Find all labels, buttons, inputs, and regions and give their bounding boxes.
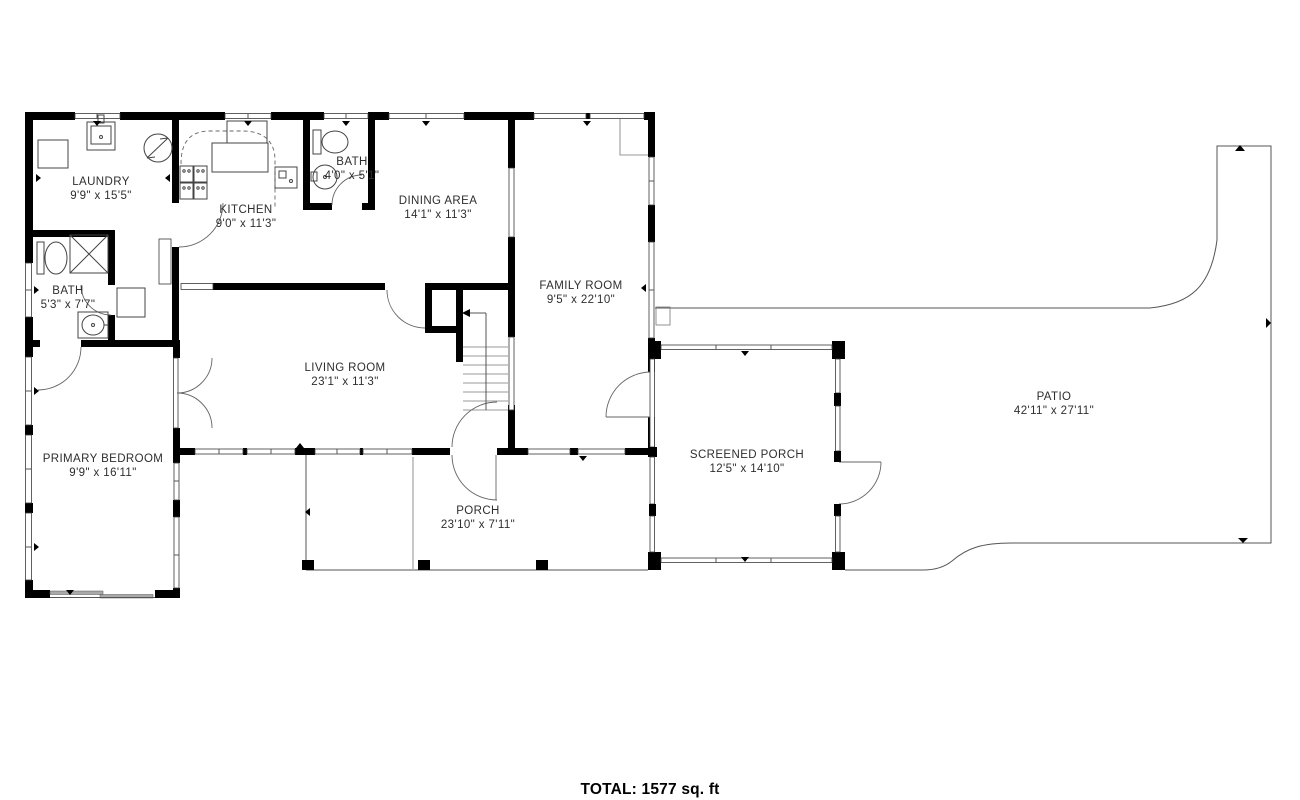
french-door-lower [177,393,212,428]
room-label-family-room: FAMILY ROOM [539,280,622,292]
room-labels: LAUNDRY 9'9" x 15'5" KITCHEN 9'0" x 11'3… [41,156,1094,531]
room-dims-dining-area: 14'1" x 11'3" [404,209,471,221]
room-label-bath-upper: BATH [336,156,367,168]
floor-plan-canvas: LAUNDRY 9'9" x 15'5" KITCHEN 9'0" x 11'3… [0,0,1300,800]
bedroom-door [38,347,81,390]
porch-post [418,560,430,570]
room-label-living-room: LIVING ROOM [304,362,385,374]
room-dims-bath-left: 5'3" x 7'7" [41,299,96,311]
room-dims-family-room: 9'5" x 22'10" [547,294,615,306]
total-area-label: TOTAL: 1577 sq. ft [580,781,719,798]
room-label-screened-porch: SCREENED PORCH [690,449,804,461]
floor-plan-page: LAUNDRY 9'9" x 15'5" KITCHEN 9'0" x 11'3… [0,0,1300,800]
room-dims-kitchen: 9'0" x 11'3" [216,218,277,230]
room-label-bath-left: BATH [52,285,83,297]
room-label-kitchen: KITCHEN [219,204,272,216]
entry-door-hall-swing [452,402,497,447]
doors [38,175,881,598]
kitchen-counter-outline [181,131,275,207]
room-dims-bath-upper: 4'0" x 5'1" [325,170,380,182]
room-dims-laundry: 9'9" x 15'5" [70,190,131,202]
room-dims-screened-porch: 12'5" x 14'10" [709,463,784,475]
room-dims-living-room: 23'1" x 11'3" [311,376,378,388]
room-label-dining-area: DINING AREA [399,195,478,207]
stair-railing [509,337,514,410]
hall-cabinet-fixture [117,288,145,317]
room-label-primary-bedroom: PRIMARY BEDROOM [43,453,164,465]
porch-post [302,560,314,570]
room-dims-porch: 23'10" x 7'11" [441,519,515,531]
dining-living-door [387,290,425,328]
entry-door-porch-swing [452,455,497,500]
room-label-patio: PATIO [1037,391,1072,403]
room-dims-primary-bedroom: 9'9" x 16'11" [69,467,136,479]
room-dims-patio: 42'11" x 27'11" [1014,405,1094,417]
room-label-porch: PORCH [456,505,500,517]
screened-porch-door [839,462,881,504]
kitchen-island-fixture [212,143,268,172]
washer-dryer-fixture [180,166,207,199]
family-patio-door [606,372,651,417]
toilet-fixture [313,130,321,154]
staircase [462,309,514,410]
room-label-laundry: LAUNDRY [72,176,130,188]
stair-arrow-icon [462,309,470,317]
patio-outline [655,146,1271,570]
toilet-fixture [37,242,44,274]
porch-post [536,560,548,570]
french-door-upper [177,358,212,393]
laundry-appliance-fixture [38,140,68,168]
sliding-door-panel [50,591,103,595]
